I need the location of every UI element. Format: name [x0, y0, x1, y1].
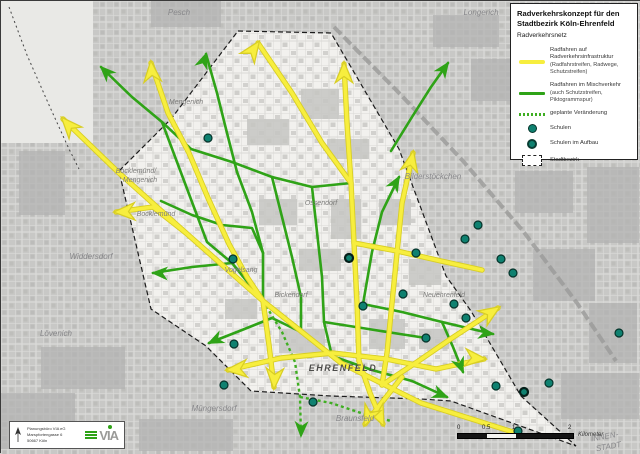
map-block: [225, 299, 257, 319]
legend-title-line2: Stadtbezirk Köln-Ehrenfeld: [517, 19, 631, 29]
legend-item-label: Schulen im Aufbau: [550, 140, 598, 148]
scale-bar: 0 0.5 1 2 Kilometer: [457, 425, 635, 443]
legend-items: Radfahren auf Radverkehrsinfrastruktur(R…: [517, 47, 631, 166]
school-marker: [497, 255, 505, 263]
school-marker: [412, 249, 420, 257]
map-block: [247, 119, 289, 145]
school-marker: [204, 134, 212, 142]
line-green-dashed-icon: [517, 113, 547, 116]
map-place-label: Pesch: [168, 8, 191, 17]
school-marker: [422, 334, 430, 342]
dot-school-icon: [517, 124, 547, 133]
scale-label-0: 0: [457, 425, 460, 431]
map-block: [139, 419, 233, 451]
school-construction-marker: [520, 388, 528, 396]
school-marker: [615, 329, 623, 337]
legend-item: Schulen: [517, 124, 631, 133]
school-marker: [359, 302, 367, 310]
legend-item: Radfahren im Mischverkehr(auch Schutzstr…: [517, 82, 631, 104]
via-logo: VIA: [85, 429, 120, 442]
map-block: [379, 199, 411, 225]
school-marker: [229, 255, 237, 263]
map-place-label: Neuehrenfeld: [423, 292, 466, 299]
legend-item: Radfahren auf Radverkehrsinfrastruktur(R…: [517, 47, 631, 77]
credits-box: Planungsbüro VIA eG Marspfortengasse 6 5…: [9, 421, 125, 449]
map-place-label: Bocklemünd: [137, 211, 177, 218]
map-place-label: Bocklemünd/: [116, 168, 158, 175]
school-marker: [474, 221, 482, 229]
scale-label-05: 0.5: [482, 425, 490, 431]
school-marker: [450, 300, 458, 308]
via-logo-dot-icon: [108, 425, 112, 429]
school-construction-marker: [345, 254, 353, 262]
scale-label-2: 2: [568, 425, 571, 431]
legend-item-label: Stadtbezirk: [550, 157, 579, 165]
scale-unit: Kilometer: [578, 432, 603, 438]
map-place-label: Mengenich: [123, 177, 157, 184]
map-place-label: Ossendorf: [305, 200, 338, 207]
school-marker: [509, 269, 517, 277]
legend-title: Radverkehrskonzept für den Stadtbezirk K…: [517, 9, 631, 29]
map-place-label: Mengenich: [169, 99, 203, 106]
north-arrow-icon: [14, 426, 22, 444]
legend-item: geplante Veränderung: [517, 110, 631, 118]
map-place-label: Lövenich: [40, 329, 73, 338]
legend-subtitle: Radverkehrsnetz: [517, 32, 631, 39]
school-marker: [462, 314, 470, 322]
map-place-label: Braunsfeld: [336, 414, 375, 423]
legend-item-label: Radfahren im Mischverkehr(auch Schutzstr…: [550, 82, 631, 104]
map-page: { "legend": { "title_line1": "Radverkehr…: [0, 0, 640, 453]
via-logo-bars-icon: [85, 431, 97, 439]
map-block: [433, 15, 499, 47]
map-place-label: EHRENFELD: [309, 363, 378, 373]
map-place-label: Vogelsang: [225, 267, 258, 274]
school-marker: [230, 340, 238, 348]
line-green-icon: [517, 92, 547, 95]
legend-item: Stadtbezirk: [517, 155, 631, 166]
legend-item: Schulen im Aufbau: [517, 139, 631, 149]
map-block: [409, 259, 441, 285]
school-marker: [461, 235, 469, 243]
school-marker: [545, 379, 553, 387]
map-block: [41, 347, 125, 389]
map-place-label: Longerich: [463, 8, 499, 17]
school-marker: [492, 382, 500, 390]
map-block: [19, 151, 65, 215]
legend-item-label: Schulen: [550, 125, 571, 133]
map-place-label: Müngersdorf: [192, 404, 238, 413]
dot-school-construction-icon: [517, 139, 547, 149]
map-block: [515, 171, 573, 213]
scale-bar-segments: [457, 433, 574, 439]
school-marker: [309, 398, 317, 406]
map-place-label: Bilderstöckchen: [405, 172, 462, 181]
map-place-label: Bickendorf: [274, 292, 308, 299]
credits-text: Planungsbüro VIA eG Marspfortengasse 6 5…: [27, 426, 80, 443]
school-marker: [220, 381, 228, 389]
map-block: [587, 167, 639, 243]
via-logo-text: VIA: [99, 429, 118, 442]
school-marker: [399, 290, 407, 298]
credits-line-3: 50667 Köln: [27, 438, 80, 444]
scale-label-1: 1: [512, 425, 515, 431]
legend-item-label: Radfahren auf Radverkehrsinfrastruktur(R…: [550, 47, 631, 77]
map-block: [561, 373, 639, 419]
map-block: [471, 59, 515, 101]
map-place-label: Widdersdorf: [69, 252, 113, 261]
line-yellow-icon: [517, 60, 547, 64]
map-block: [589, 303, 637, 363]
legend-panel: Radverkehrskonzept für den Stadtbezirk K…: [510, 3, 638, 160]
district-box-icon: [517, 155, 547, 166]
legend-title-line1: Radverkehrskonzept für den: [517, 9, 631, 19]
legend-item-label: geplante Veränderung: [550, 110, 607, 118]
